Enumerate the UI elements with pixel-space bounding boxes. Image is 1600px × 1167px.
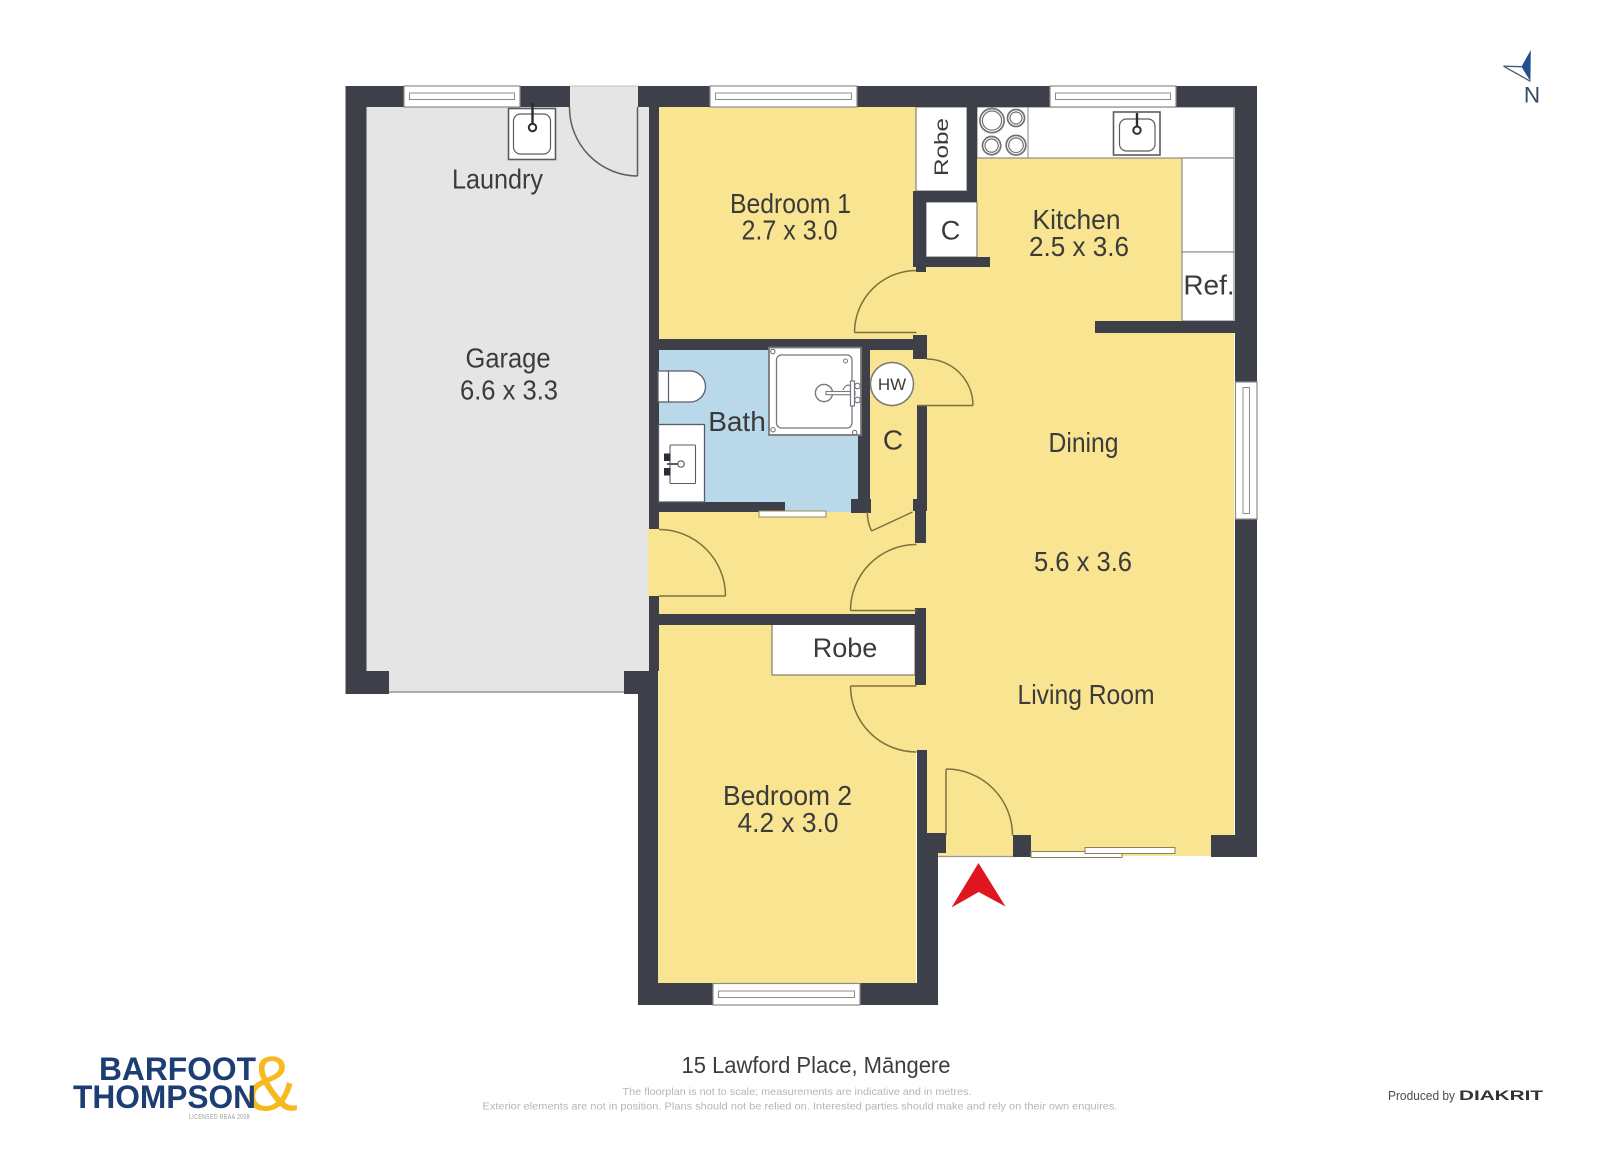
svg-text:15 Lawford Place, Māngere: 15 Lawford Place, Māngere — [682, 1052, 951, 1078]
svg-text:6.6 x 3.3: 6.6 x 3.3 — [460, 375, 558, 406]
svg-text:Living Room: Living Room — [1018, 679, 1155, 710]
svg-text:Laundry: Laundry — [452, 164, 543, 195]
svg-text:DIAKRIT: DIAKRIT — [1459, 1088, 1544, 1103]
svg-text:N: N — [1524, 83, 1540, 108]
svg-text:Robe: Robe — [813, 633, 878, 663]
svg-text:Dining: Dining — [1049, 427, 1119, 458]
svg-text:Produced by: Produced by — [1388, 1089, 1456, 1103]
svg-text:Robe: Robe — [932, 118, 953, 176]
svg-text:Exterior elements are not in p: Exterior elements are not in position. P… — [483, 1101, 1118, 1113]
svg-text:4.2 x 3.0: 4.2 x 3.0 — [738, 807, 839, 838]
svg-text:5.6 x 3.6: 5.6 x 3.6 — [1034, 546, 1132, 577]
svg-text:2.7 x 3.0: 2.7 x 3.0 — [742, 215, 838, 246]
svg-text:C: C — [883, 425, 903, 456]
svg-text:HW: HW — [878, 375, 906, 394]
svg-text:THOMPSON: THOMPSON — [73, 1079, 256, 1115]
svg-text:Garage: Garage — [466, 343, 551, 374]
svg-text:C: C — [941, 216, 961, 246]
svg-text:Bath: Bath — [708, 406, 766, 437]
svg-text:LICENSED REAA 2008: LICENSED REAA 2008 — [189, 1114, 250, 1121]
svg-text:2.5 x 3.6: 2.5 x 3.6 — [1029, 231, 1129, 262]
svg-text:Ref.: Ref. — [1183, 270, 1234, 301]
svg-text:The floorplan is not to scale;: The floorplan is not to scale; measureme… — [623, 1086, 972, 1098]
